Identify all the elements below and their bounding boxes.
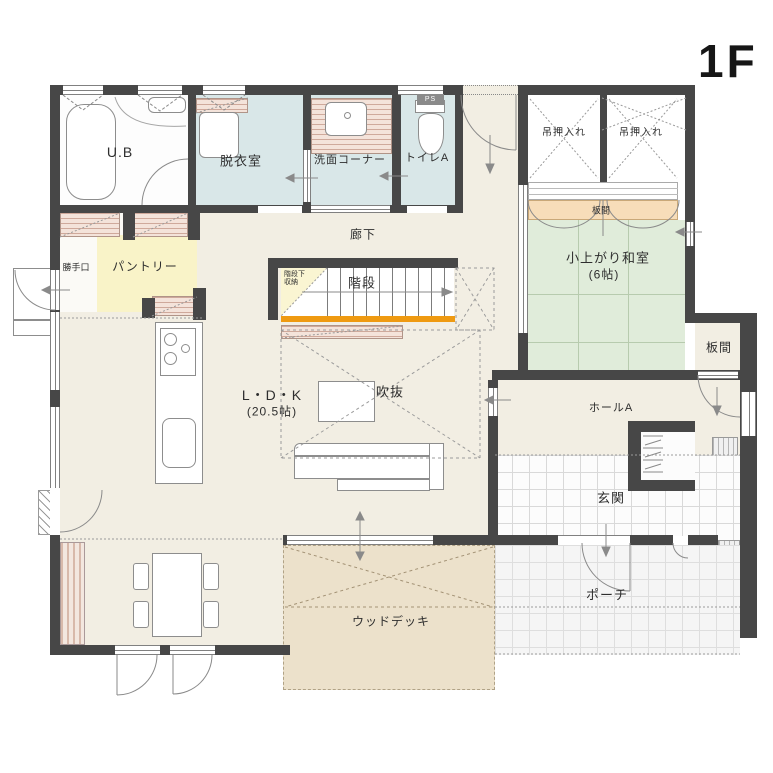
- terrace-door-1: [115, 645, 160, 655]
- dressing-sliding-door: [303, 150, 311, 202]
- wall-stair-left: [268, 258, 278, 320]
- wall-left-upper: [50, 85, 60, 270]
- wall-toilet-corridor: [455, 95, 463, 205]
- counter-pantry: [152, 296, 197, 316]
- closet-left: [528, 95, 600, 182]
- label-genkan: 玄関: [597, 488, 625, 507]
- ps-box: PS: [417, 94, 444, 105]
- label-porch: ポーチ: [586, 585, 628, 604]
- kitchen-sink: [162, 418, 196, 468]
- stair-accent-strip: [281, 316, 455, 322]
- tatami-line: [578, 220, 579, 370]
- label-hanging-closet-right: 吊押入れ: [619, 124, 663, 139]
- window-bath-2: [138, 85, 182, 95]
- wall-stair-top: [268, 258, 458, 268]
- stair-steps: [327, 268, 453, 316]
- label-ldk-size: (20.5帖): [247, 403, 297, 420]
- label-under-stairs: 階段下 収納: [284, 271, 305, 287]
- living-table: [318, 381, 375, 422]
- sofa-chaise: [429, 443, 444, 490]
- tatami-line: [528, 294, 685, 295]
- wall-genkan-bottom-mid: [630, 535, 673, 545]
- itanoma-door: [698, 371, 738, 379]
- label-hanging-closet-left: 吊押入れ: [542, 124, 586, 139]
- label-tatami-size: (6帖): [589, 266, 620, 283]
- wall-pantry-stub-4: [193, 288, 206, 320]
- label-itanoma-strip: 板間: [592, 204, 610, 217]
- porch-side-opening: [673, 536, 688, 544]
- toilet-door: [407, 206, 447, 213]
- wash-corridor-opening: [311, 205, 390, 213]
- counter-under-stairs: [281, 325, 403, 339]
- label-itanoma-room: 板間: [706, 339, 732, 356]
- wall-pantry-stub-1: [123, 205, 135, 240]
- label-back-door: 勝手口: [62, 261, 89, 274]
- closet-shelf-strip: [528, 182, 678, 200]
- wall-wet-bottom: [50, 205, 463, 213]
- wall-pantry-stub-3: [142, 298, 155, 318]
- dressing-door: [258, 206, 302, 213]
- dining-chair: [133, 563, 149, 590]
- bath-washstand: [148, 97, 186, 113]
- window-itanoma-right: [741, 392, 756, 436]
- label-wash-corner: 洗面コーナー: [314, 151, 386, 167]
- label-dressing-room: 脱衣室: [220, 151, 262, 170]
- opening-corridor-top: [463, 85, 518, 95]
- dining-chair: [133, 601, 149, 628]
- closet-shelf-line: [528, 188, 678, 189]
- front-door-opening: [558, 535, 630, 545]
- wall-genkan-bottom-right: [688, 535, 718, 545]
- label-void: 吹抜: [376, 382, 404, 401]
- label-ps: PS: [425, 96, 436, 103]
- washitsu-sliding-doors: [518, 185, 528, 333]
- sofa-ottoman: [337, 479, 430, 491]
- stove-burner: [164, 352, 177, 365]
- sofa-seat: [294, 456, 444, 479]
- wash-basin-faucet: [344, 112, 351, 119]
- closet-right: [607, 95, 678, 182]
- counter-back-entry-right: [133, 212, 188, 237]
- opening-left-lower: [50, 490, 60, 535]
- back-door-opening: [50, 270, 60, 310]
- wall-left-lower: [50, 535, 60, 655]
- wall-washitsu-left-upper: [518, 95, 528, 185]
- floor-title: 1F: [698, 34, 758, 88]
- floor-plan: 1F U.B 脱衣室 洗面コーナー トイレA PS 廊下 階段 階段下 収納 吊…: [0, 0, 773, 773]
- wall-top-right: [518, 85, 695, 95]
- wall-ub-dressing: [188, 95, 196, 205]
- room-hall-a: [498, 380, 740, 455]
- wall-left-pier: [50, 390, 60, 407]
- wall-washitsu-right: [685, 85, 695, 323]
- shoe-closet-floor: [641, 432, 695, 480]
- counter-back-entry-left: [60, 212, 120, 237]
- closet-shelf-line: [528, 194, 678, 195]
- label-tatami-room: 小上がり和室: [566, 248, 650, 267]
- back-door-step: [13, 320, 55, 336]
- sofa-back: [294, 443, 444, 456]
- window-left-2: [50, 407, 60, 488]
- hall-ldk-opening: [488, 388, 498, 416]
- label-stairs: 階段: [348, 273, 376, 292]
- wall-shoe-closet-bottom: [628, 480, 695, 491]
- tatami-line: [528, 342, 685, 343]
- window-dressing: [203, 85, 245, 95]
- terrace-door-2: [170, 645, 215, 655]
- label-toilet-a: トイレA: [405, 149, 449, 165]
- louver-bench: [60, 542, 85, 645]
- label-unit-bath: U.B: [107, 144, 133, 160]
- window-left-1: [50, 312, 60, 390]
- tatami-floor: [528, 220, 685, 370]
- dressing-counter: [196, 98, 248, 113]
- label-wood-deck: ウッドデッキ: [352, 613, 430, 630]
- wall-wash-toilet: [392, 95, 401, 205]
- stove-burner: [181, 344, 190, 353]
- wall-closet-divider: [600, 95, 607, 182]
- back-door-stoop: [13, 268, 55, 320]
- tatami-line: [628, 220, 629, 370]
- stove-burner: [164, 333, 177, 346]
- window-washitsu-right: [686, 222, 694, 246]
- dining-table: [152, 553, 202, 637]
- label-pantry: パントリー: [112, 258, 178, 275]
- window-bath-1: [63, 85, 103, 95]
- label-hall-a: ホールA: [589, 399, 633, 415]
- wall-right-column: [740, 313, 757, 638]
- dining-chair: [203, 601, 219, 628]
- deck-sliding-door: [287, 535, 433, 545]
- label-hallway: 廊下: [350, 226, 376, 243]
- dining-chair: [203, 563, 219, 590]
- wash-basin: [325, 102, 367, 136]
- wall-genkan-bottom-left: [483, 535, 558, 545]
- wall-pantry-stub-2: [188, 205, 200, 240]
